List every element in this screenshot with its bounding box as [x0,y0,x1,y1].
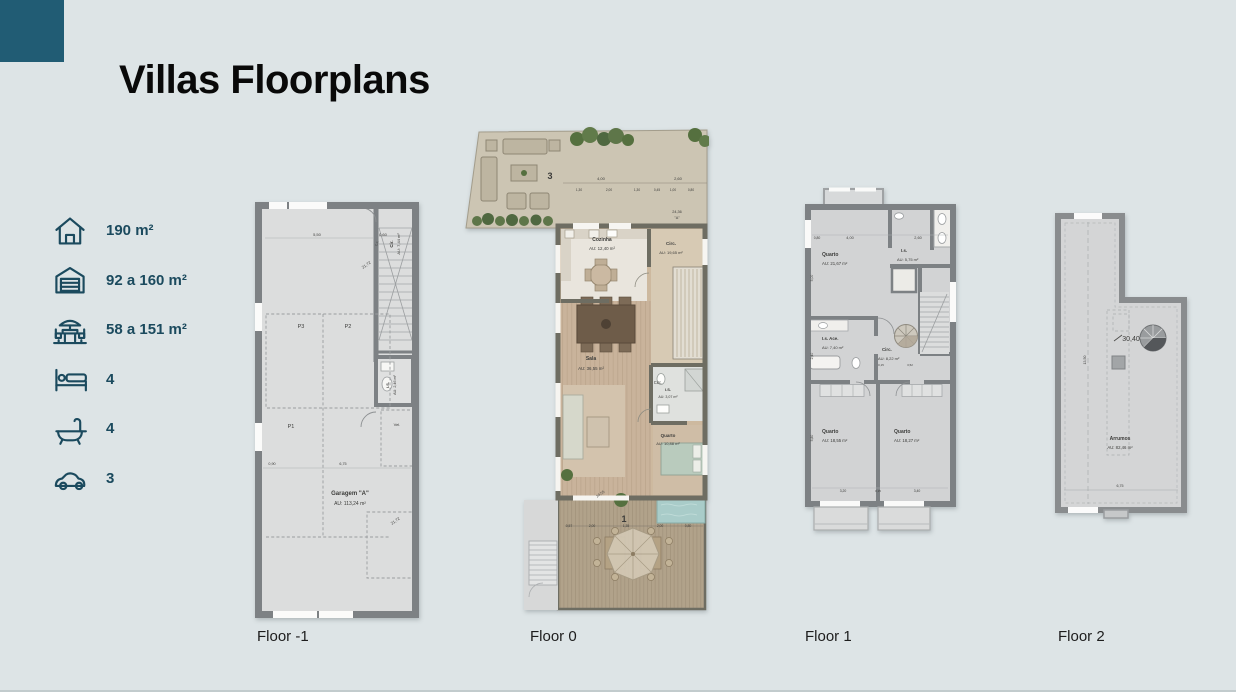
coffee-table [587,417,609,447]
plan-label: 5,80 [810,435,814,442]
plan-label: I.s. Ace. [822,336,838,341]
plan-label: AU: 36,55 m² [578,366,604,371]
plan-label: Circ. [666,241,676,246]
plan-label: 0,15 [875,489,881,493]
plan-label: Quarto [661,433,676,438]
legend-label: 4 [106,420,114,437]
plan-label: 0,80 [814,236,821,240]
plan-label: 24,36 [672,210,682,214]
kitchen-table [590,264,612,286]
plan-label: 30,40 [1122,336,1140,343]
plan-label: 2,60 [914,236,921,240]
plan-label: AU: 18,27 m² [894,438,920,443]
plan-label: 0,90 [268,462,275,466]
floor-caption: Floor 2 [1058,628,1105,645]
plan-label: Garagem "A" [331,491,369,497]
plan-label: I.S. [665,387,671,392]
plan-label: Quarto [894,429,910,435]
legend-label: 3 [106,470,114,487]
plan-label: AU: 5,75 m² [897,257,919,262]
plan-label: AU: 10,88 m² [656,441,680,446]
legend-item-terrace-area: 58 a 151 m² [50,305,187,355]
plan-label: Cir. [389,240,394,247]
plan-label: I.s. [901,248,907,253]
bathtub-icon [50,412,90,446]
dining-table [577,297,635,352]
car-icon [50,461,90,495]
plan-label: AU: 18,55 m² [822,438,848,443]
spiral-staircase [1140,325,1166,351]
floor-caption: Floor 1 [805,628,852,645]
plan-label: 1,30 [634,188,640,192]
floor-caption: Floor -1 [257,628,309,645]
plan-label: 1,00 [670,188,676,192]
exterior-stairs [529,541,557,585]
plan-label: AU: 12,40 m² [589,246,615,251]
plan-label: P3 [298,324,305,330]
plan-label: AU: 2,46 m² [393,374,397,394]
floorplan-floor-2: 30,4013,50ArrumosAU: 82,46 m²6,75 [1050,210,1190,520]
plan-label: 2,00 [589,524,596,528]
plan-label: AU: 21,67 m² [822,261,848,266]
garage-icon [50,263,90,297]
plan-label: 1 [621,514,626,524]
floorplan-floor-minus-1: 5,500,60C.F.21,72Cir.AU: 7,44 m²P3P2P1I.… [255,202,419,618]
plan-label: Sala [586,356,597,362]
plan-label: Vel. [394,422,401,427]
plan-label: 13,50 [1083,356,1087,365]
legend: 190 m² 92 a 160 m² 58 a 151 m² 4 4 [50,206,187,503]
plan-label: 2,40 [810,353,814,360]
plan-label: 0,57 [566,524,573,528]
plan-label: 2,00 [606,188,612,192]
roof-terrace [466,130,707,228]
legend-label: 58 a 151 m² [106,321,187,338]
roof-hatch [1104,510,1128,518]
plan-label: 3,40 [914,489,921,493]
plan-label: AU: 113,24 m² [334,501,366,507]
spiral-staircase [895,325,918,348]
legend-label: 92 a 160 m² [106,272,187,289]
plan-label: 0,80 [685,524,692,528]
plan-label: 0,80 [688,188,694,192]
garage-floor [261,208,413,612]
plan-label: AU: 19,65 m² [659,250,683,255]
balcony [878,507,930,530]
pool [657,499,705,523]
plan-label: AU: 7,44 m² [396,233,401,255]
floor-caption: Floor 0 [530,628,577,645]
legend-label: 4 [106,371,114,388]
bed-icon [50,362,90,396]
corner-accent-block [0,0,64,62]
plan-label: 5,50 [313,232,322,237]
plan-label: "A" [674,216,680,220]
legend-item-garage-area: 92 a 160 m² [50,256,187,306]
plan-label: 0,15 [878,363,884,367]
plan-label: I.S. [385,382,390,388]
bed [661,443,703,475]
balcony [814,507,868,530]
plan-label: 3 [547,171,552,181]
legend-item-parking: 3 [50,454,187,504]
plan-label: AU: 7,40 m² [822,345,844,350]
plan-label: 2,00 [657,524,664,528]
terrace-icon [50,313,90,347]
slide-canvas: Villas Floorplans 190 m² 92 a 160 m² 58 … [0,0,1236,692]
plan-label: Circ. [654,380,663,385]
legend-item-bedrooms: 4 [50,355,187,405]
plan-label: 1,35 [623,524,630,528]
plan-label: Circ. [882,347,892,352]
plan-label: P2 [345,324,352,330]
plan-label: 0,60 [379,232,388,237]
plan-label: AU: 8,22 m² [878,356,900,361]
plan-label: 6,75 [339,462,346,466]
plan-label: 2,60 [674,176,683,181]
sofa [563,395,583,459]
plan-label: Quarto [822,252,838,258]
legend-item-living-area: 190 m² [50,206,187,256]
plan-label: 4,00 [597,176,606,181]
plan-label: P1 [288,424,295,430]
floorplan-floor-1: 0,804,002,60QuartoAU: 21,67 m²I.s.AU: 5,… [798,186,958,546]
plan-label: 1,30 [576,188,582,192]
plan-label: 3,52 [907,363,913,367]
plan-label: 0,45 [654,188,660,192]
plan-label: 3,20 [840,489,847,493]
plan-label: Cozinha [592,237,612,243]
plan-label: 4,00 [846,236,853,240]
plan-label: AU: 3,07 m² [658,395,678,399]
plan-label: Arrumos [1110,436,1131,442]
plan-label: 6,75 [1117,484,1124,488]
plan-label: Quarto [822,429,838,435]
page-title: Villas Floorplans [119,58,430,103]
house-icon [50,214,90,248]
plan-label: 5,00 [810,275,814,282]
plan-label: AU: 82,46 m² [1107,445,1133,450]
floorplan-floor-0: 34,002,601,302,001,300,451,000,8024,36"A… [461,127,709,614]
legend-item-bathrooms: 4 [50,404,187,454]
legend-label: 190 m² [106,222,154,239]
